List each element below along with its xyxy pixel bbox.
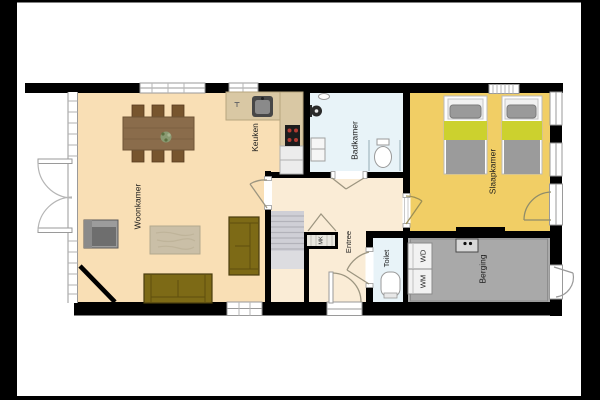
svg-text:Badkamer: Badkamer	[350, 121, 360, 160]
svg-text:Slaapkamer: Slaapkamer	[488, 149, 498, 195]
svg-text:Toilet: Toilet	[382, 249, 391, 267]
svg-text:MK: MK	[319, 236, 325, 245]
svg-text:Woonkamer: Woonkamer	[133, 183, 143, 229]
svg-text:Keuken: Keuken	[250, 123, 260, 152]
svg-text:WD: WD	[419, 249, 428, 262]
svg-text:Berging: Berging	[478, 254, 488, 284]
svg-text:Entree: Entree	[344, 231, 353, 253]
svg-text:WM: WM	[419, 275, 428, 288]
